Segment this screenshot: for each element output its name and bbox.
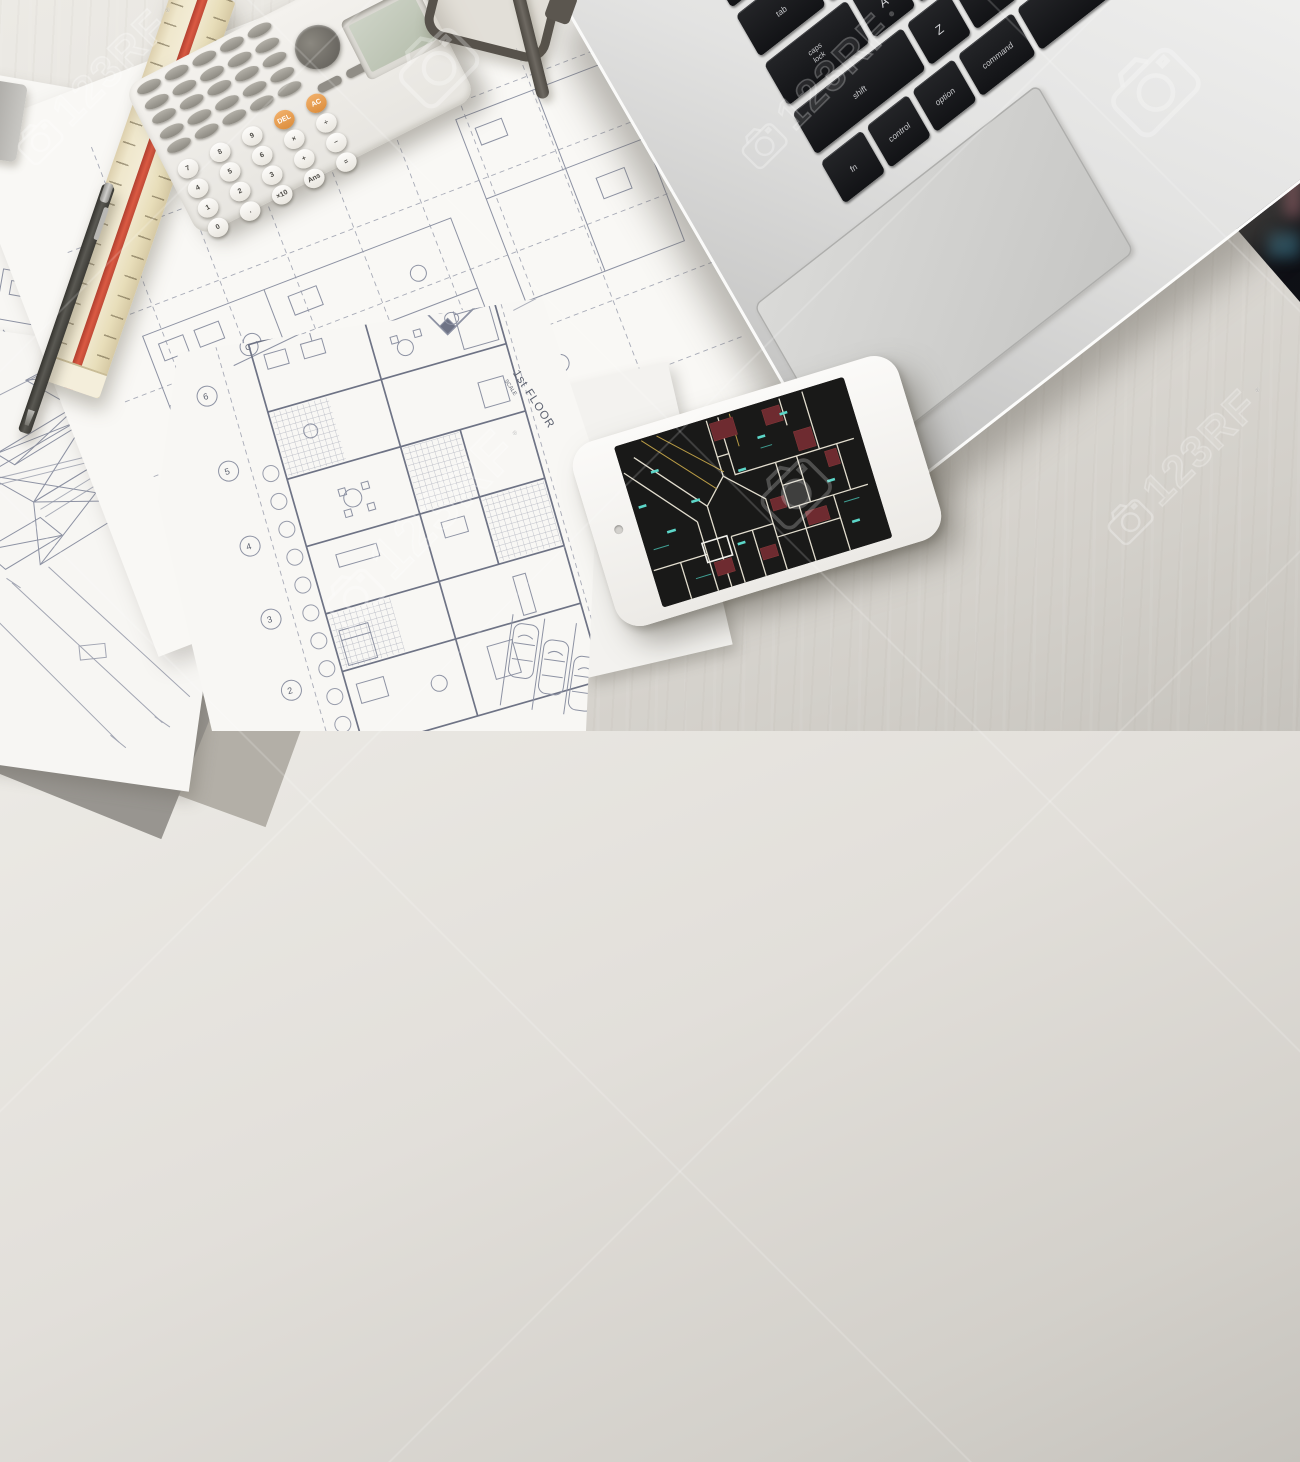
stock-photo-architect-desk: { "scene": { "description": "Top view of…: [0, 0, 1300, 731]
grid-bubble-3: 3: [266, 614, 274, 625]
phone-camera-dot: [613, 524, 624, 535]
grid-bubble-4: 4: [245, 541, 253, 552]
laptop-key-space: [1017, 0, 1279, 50]
grid-bubble-6: 6: [202, 391, 210, 402]
calculator-shift-key: [316, 74, 343, 94]
floor-plan-title: 1st FLOOR: [510, 368, 557, 431]
calculator-lcd: [348, 0, 436, 72]
calculator-nav-button: [287, 17, 348, 77]
grid-bubble-5: 5: [223, 466, 231, 477]
grid-bubble-2: 2: [286, 685, 294, 696]
blueprint-sheet-main: 6 5 4 3 2 C E F G: [150, 295, 610, 731]
pencil-tip: [23, 409, 35, 426]
screen-glow-blob: [1268, 232, 1300, 258]
